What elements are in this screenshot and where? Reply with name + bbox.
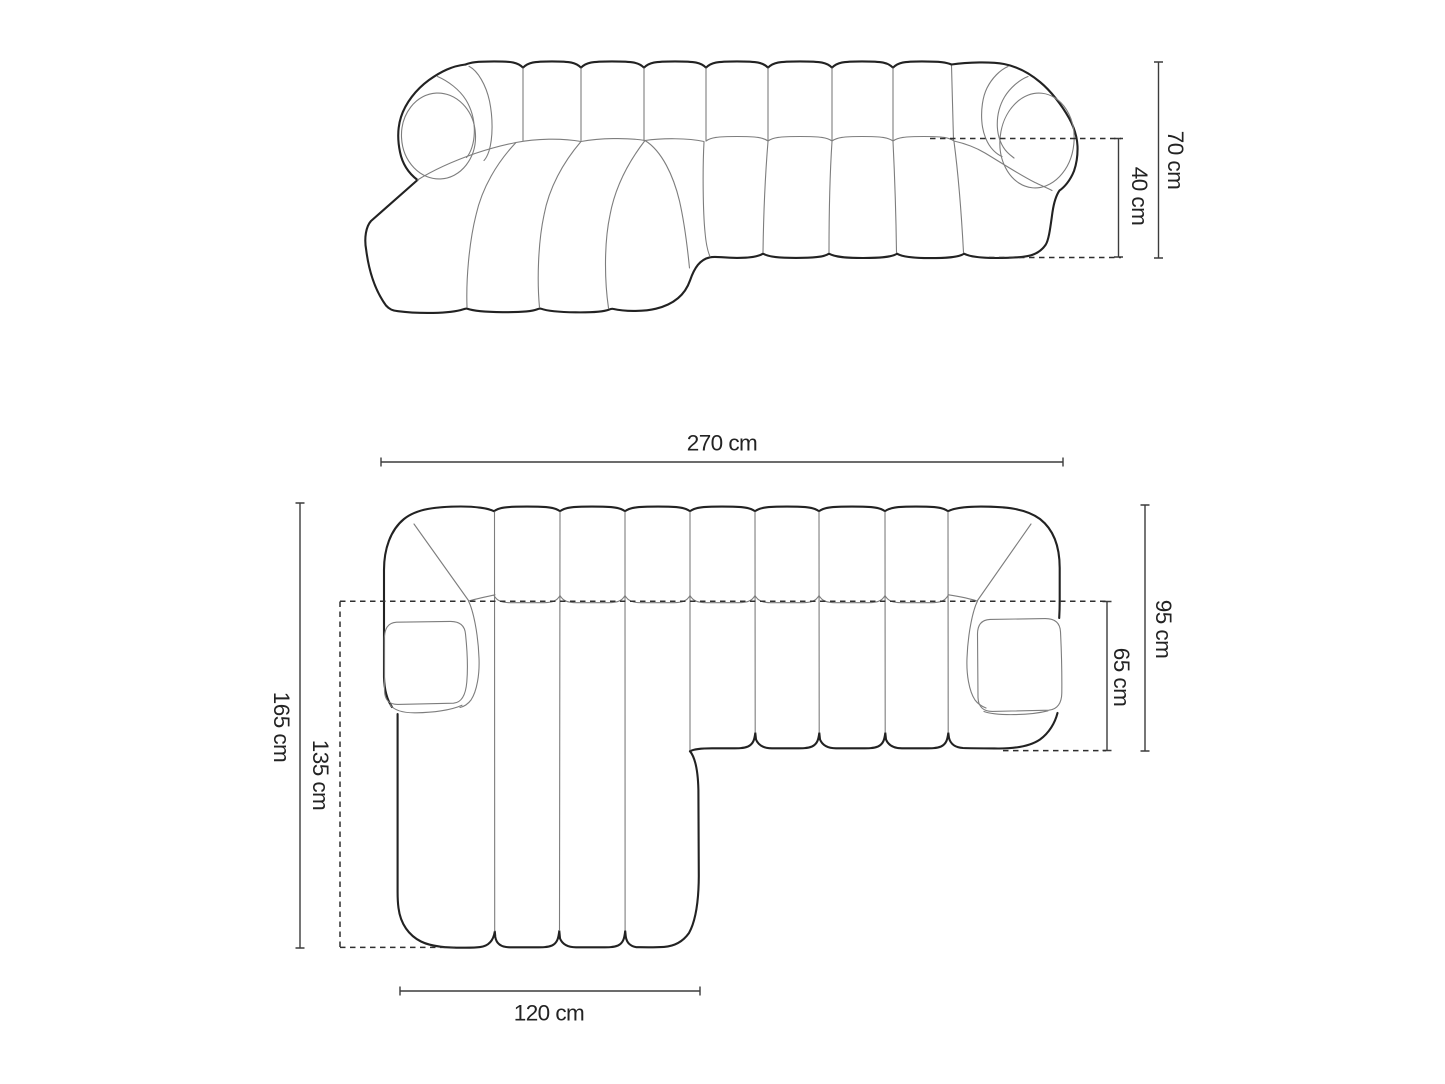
svg-text:40 cm: 40 cm [1127, 167, 1152, 226]
svg-text:165 cm: 165 cm [269, 692, 294, 762]
svg-text:95 cm: 95 cm [1151, 600, 1176, 659]
svg-text:70 cm: 70 cm [1163, 131, 1188, 190]
svg-text:270 cm: 270 cm [687, 431, 757, 456]
svg-text:135 cm: 135 cm [308, 740, 333, 810]
svg-text:120 cm: 120 cm [514, 1001, 584, 1026]
svg-text:65 cm: 65 cm [1109, 648, 1134, 707]
